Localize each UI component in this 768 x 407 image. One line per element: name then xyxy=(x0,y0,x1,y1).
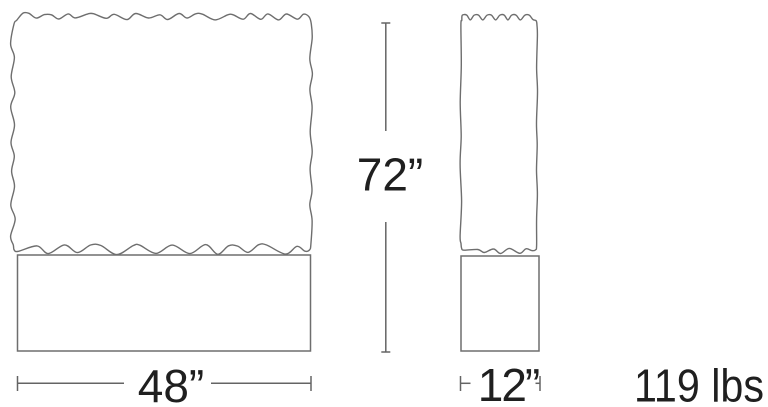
svg-text:48”: 48” xyxy=(138,360,204,407)
svg-text:12”: 12” xyxy=(478,359,539,407)
svg-text:119 lbs: 119 lbs xyxy=(634,360,764,407)
svg-text:72”: 72” xyxy=(357,149,423,201)
